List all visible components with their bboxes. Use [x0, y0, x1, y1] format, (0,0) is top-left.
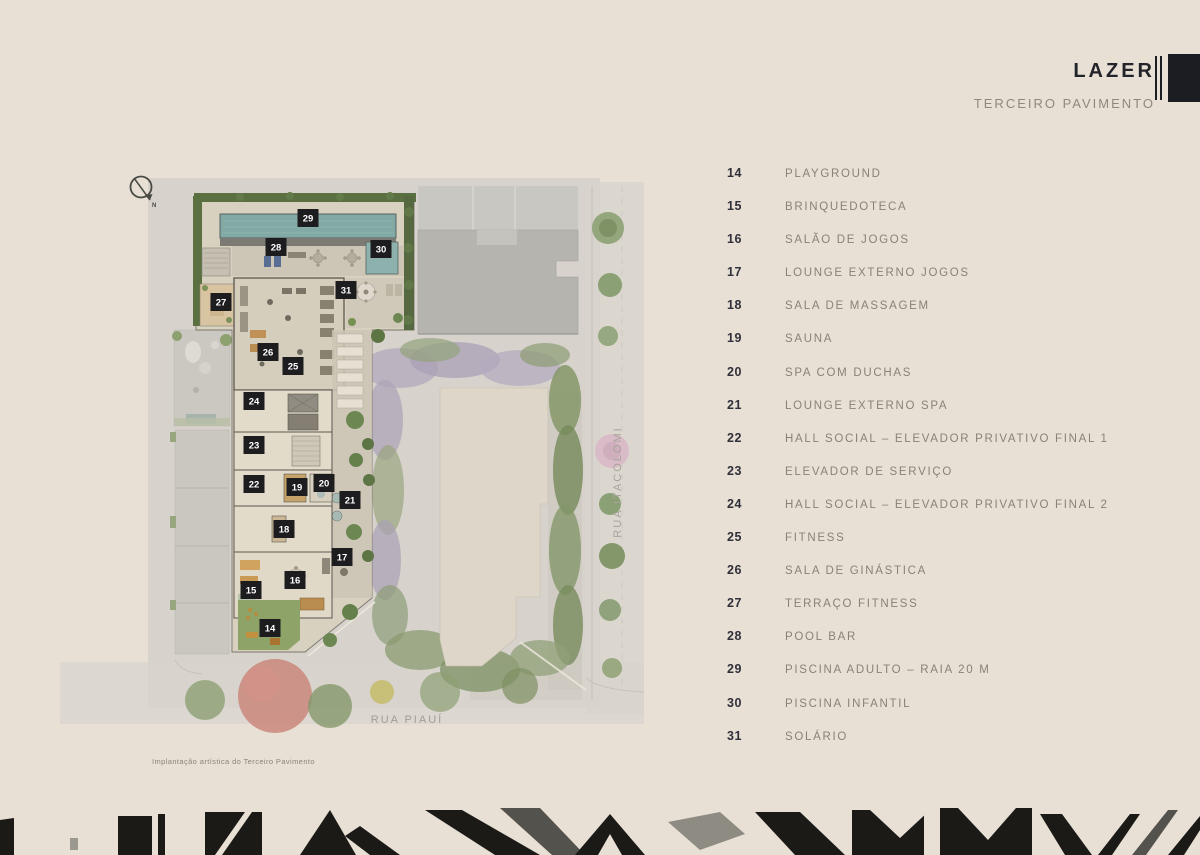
page-subtitle: TERCEIRO PAVIMENTO	[974, 96, 1155, 111]
plan-marker-24: 24	[244, 392, 265, 410]
legend-number: 20	[727, 365, 785, 379]
svg-text:29: 29	[303, 214, 314, 225]
svg-text:24: 24	[249, 397, 260, 408]
legend-row-30: 30PISCINA INFANTIL	[727, 696, 1197, 729]
page-title: LAZER	[1073, 60, 1155, 83]
legend-label: SALA DE MASSAGEM	[785, 300, 930, 312]
neighbor-building	[418, 186, 578, 334]
svg-text:16: 16	[290, 576, 301, 587]
legend-label: SPA COM DUCHAS	[785, 367, 912, 379]
legend-number: 25	[727, 530, 785, 544]
legend-row-31: 31SOLÁRIO	[727, 729, 1197, 762]
legend-row-22: 22HALL SOCIAL – ELEVADOR PRIVATIVO FINAL…	[727, 431, 1197, 464]
legend-row-18: 18SALA DE MASSAGEM	[727, 298, 1197, 331]
north-label: N	[152, 203, 156, 209]
legend-label: SOLÁRIO	[785, 731, 848, 743]
legend-number: 21	[727, 398, 785, 412]
legend-label: POOL BAR	[785, 631, 857, 643]
svg-text:14: 14	[265, 624, 276, 635]
brand-bar-icon	[1168, 54, 1200, 102]
legend-label: SAUNA	[785, 333, 833, 345]
svg-text:30: 30	[376, 245, 387, 256]
svg-text:17: 17	[337, 553, 348, 564]
plan-marker-15: 15	[241, 581, 262, 599]
legend-row-16: 16SALÃO DE JOGOS	[727, 232, 1197, 265]
decorative-art-strip	[0, 808, 1200, 855]
legend-label: HALL SOCIAL – ELEVADOR PRIVATIVO FINAL 2	[785, 499, 1109, 511]
site-plan-illustration: N RUA PIAUÍ RUA ITACOLOMI 29283031272625…	[60, 160, 680, 780]
legend-row-23: 23ELEVADOR DE SERVIÇO	[727, 464, 1197, 497]
svg-text:27: 27	[216, 298, 227, 309]
legend-label: PLAYGROUND	[785, 168, 882, 180]
legend-row-27: 27TERRAÇO FITNESS	[727, 596, 1197, 629]
plan-caption: Implantação artística do Terceiro Pavime…	[152, 757, 315, 766]
legend-row-15: 15BRINQUEDOTECA	[727, 199, 1197, 232]
legend-row-20: 20SPA COM DUCHAS	[727, 365, 1197, 398]
plan-marker-19: 19	[287, 478, 308, 496]
plan-marker-20: 20	[314, 474, 335, 492]
legend-label: PISCINA INFANTIL	[785, 698, 911, 710]
legend-number: 30	[727, 696, 785, 710]
legend-row-17: 17LOUNGE EXTERNO JOGOS	[727, 265, 1197, 298]
plan-marker-18: 18	[274, 520, 295, 538]
brand-bar-icon	[1160, 56, 1162, 100]
plan-marker-21: 21	[340, 491, 361, 509]
legend-label: SALA DE GINÁSTICA	[785, 565, 927, 577]
legend-row-14: 14PLAYGROUND	[727, 166, 1197, 199]
svg-text:19: 19	[292, 483, 303, 494]
svg-text:26: 26	[263, 348, 274, 359]
plan-marker-30: 30	[371, 240, 392, 258]
plan-marker-27: 27	[211, 293, 232, 311]
svg-text:25: 25	[288, 362, 299, 373]
plan-marker-26: 26	[258, 343, 279, 361]
legend-label: FITNESS	[785, 532, 845, 544]
legend-label: TERRAÇO FITNESS	[785, 598, 918, 610]
legend-number: 23	[727, 464, 785, 478]
legend-number: 22	[727, 431, 785, 445]
legend-number: 16	[727, 232, 785, 246]
brochure-page: LAZER TERCEIRO PAVIMENTO 14PLAYGROUND15B…	[0, 0, 1200, 855]
legend-number: 15	[727, 199, 785, 213]
svg-text:28: 28	[271, 243, 282, 254]
legend-number: 17	[727, 265, 785, 279]
plan-marker-23: 23	[244, 436, 265, 454]
svg-text:22: 22	[249, 480, 260, 491]
side-roof-panels	[170, 430, 229, 654]
legend-number: 26	[727, 563, 785, 577]
svg-text:15: 15	[246, 586, 257, 597]
svg-text:18: 18	[279, 525, 290, 536]
legend-label: LOUNGE EXTERNO SPA	[785, 400, 948, 412]
street-label-right: RUA ITACOLOMI	[612, 426, 624, 537]
svg-text:21: 21	[345, 496, 356, 507]
plan-marker-29: 29	[298, 209, 319, 227]
street-label-bottom: RUA PIAUÍ	[371, 713, 443, 726]
zen-courtyard	[172, 330, 232, 426]
plan-marker-28: 28	[266, 238, 287, 256]
legend-row-21: 21LOUNGE EXTERNO SPA	[727, 398, 1197, 431]
legend-label: HALL SOCIAL – ELEVADOR PRIVATIVO FINAL 1	[785, 433, 1109, 445]
svg-text:20: 20	[319, 479, 330, 490]
legend-number: 19	[727, 331, 785, 345]
brand-bar-icon	[1155, 56, 1157, 100]
svg-text:31: 31	[341, 286, 352, 297]
plan-marker-14: 14	[260, 619, 281, 637]
legend-number: 14	[727, 166, 785, 180]
legend: 14PLAYGROUND15BRINQUEDOTECA16SALÃO DE JO…	[727, 166, 1197, 762]
legend-row-25: 25FITNESS	[727, 530, 1197, 563]
plan-marker-25: 25	[283, 357, 304, 375]
plan-marker-22: 22	[244, 475, 265, 493]
legend-row-28: 28POOL BAR	[727, 629, 1197, 662]
legend-number: 24	[727, 497, 785, 511]
legend-number: 18	[727, 298, 785, 312]
legend-number: 29	[727, 662, 785, 676]
legend-row-24: 24HALL SOCIAL – ELEVADOR PRIVATIVO FINAL…	[727, 497, 1197, 530]
svg-text:23: 23	[249, 441, 260, 452]
legend-number: 31	[727, 729, 785, 743]
legend-label: LOUNGE EXTERNO JOGOS	[785, 267, 970, 279]
legend-label: PISCINA ADULTO – RAIA 20 M	[785, 664, 990, 676]
plan-marker-17: 17	[332, 548, 353, 566]
legend-label: BRINQUEDOTECA	[785, 201, 907, 213]
plan-marker-16: 16	[285, 571, 306, 589]
legend-label: ELEVADOR DE SERVIÇO	[785, 466, 953, 478]
legend-number: 27	[727, 596, 785, 610]
plan-marker-31: 31	[336, 281, 357, 299]
legend-row-26: 26SALA DE GINÁSTICA	[727, 563, 1197, 596]
legend-number: 28	[727, 629, 785, 643]
legend-label: SALÃO DE JOGOS	[785, 234, 910, 246]
hedge	[194, 193, 416, 202]
courtyard-plaza	[362, 338, 586, 700]
legend-row-29: 29PISCINA ADULTO – RAIA 20 M	[727, 662, 1197, 695]
legend-row-19: 19SAUNA	[727, 331, 1197, 364]
